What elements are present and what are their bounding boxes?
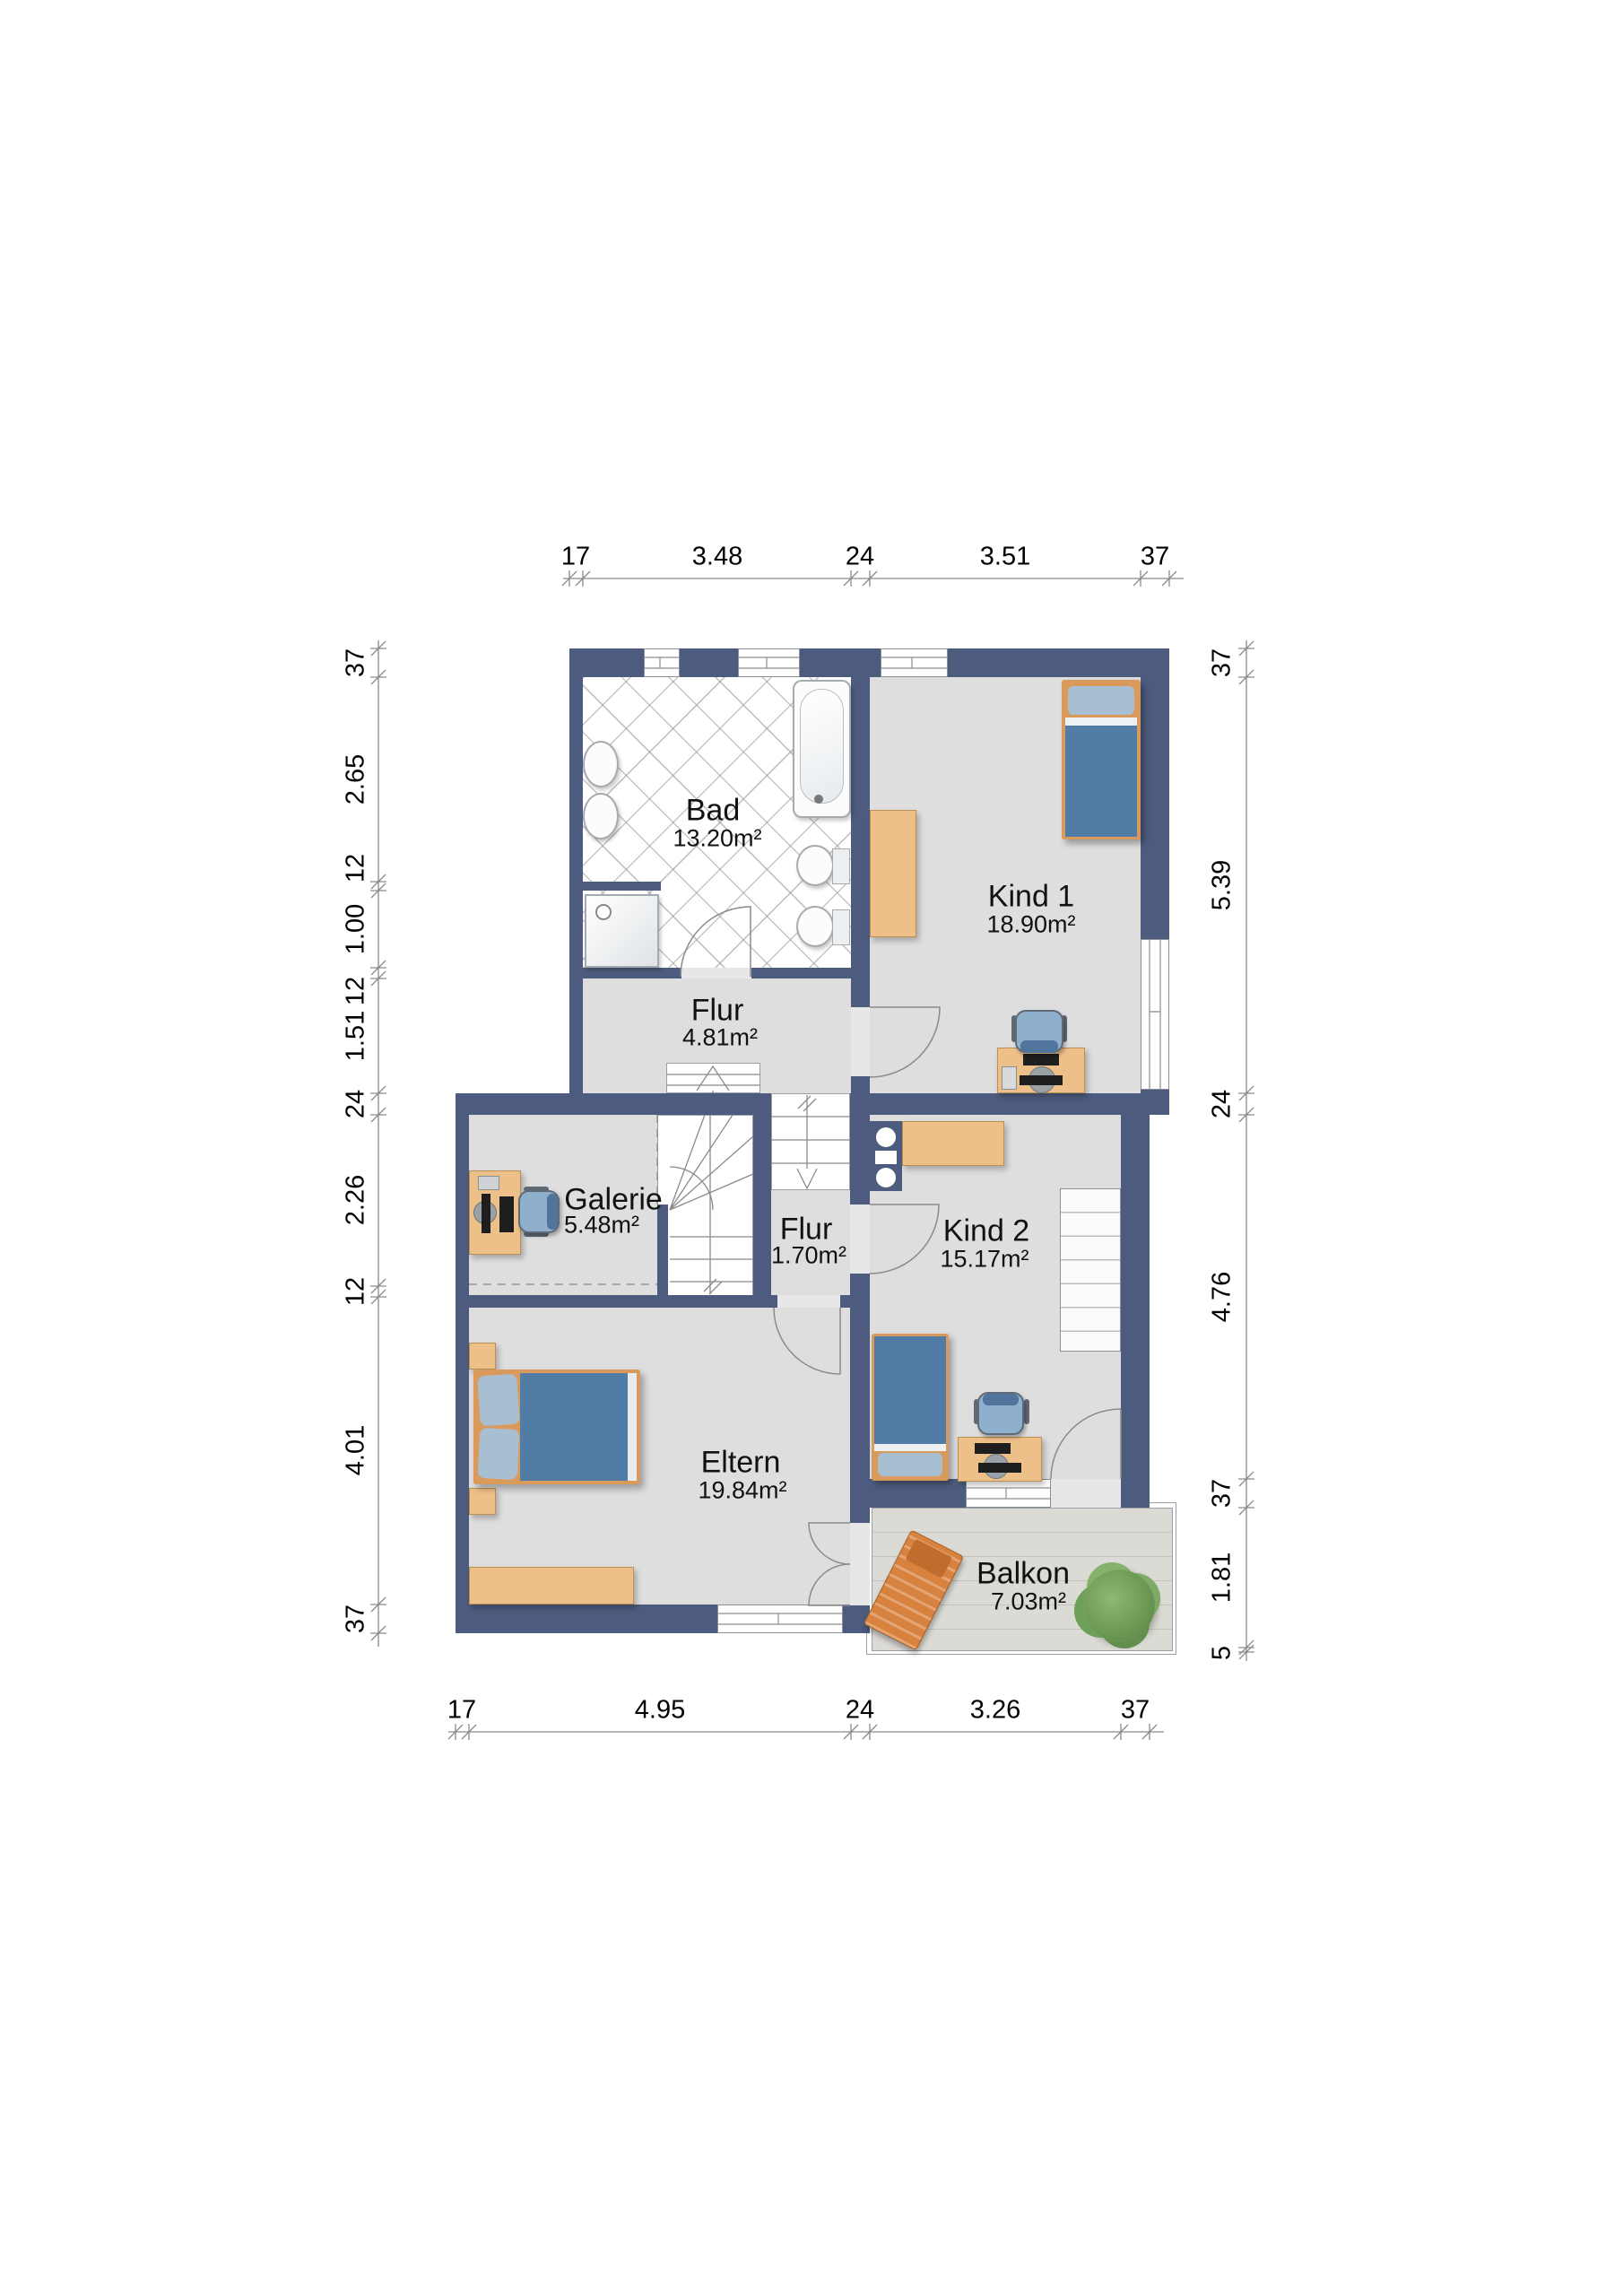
nightstand-2 [469, 1488, 496, 1515]
dresser-knob-2 [876, 1168, 896, 1187]
wall-flur2-a [850, 1093, 870, 1205]
desk-kind2 [958, 1437, 1042, 1482]
label-balkon-area: 7.03m² [991, 1588, 1066, 1616]
chair-kind1-back [1020, 1040, 1058, 1053]
wall-bad-kind1-b [851, 1076, 870, 1093]
shower-tray [585, 894, 659, 968]
sideboard-eltern [469, 1567, 634, 1605]
toilet-2-bowl [796, 906, 834, 947]
desk-galerie-tower [499, 1196, 514, 1232]
threshold-kind2-door [850, 1205, 870, 1274]
window-bad-small [644, 648, 680, 677]
dim-left-2: 12 [342, 854, 371, 883]
dim-line-top [562, 570, 1184, 587]
dim-right-1: 5.39 [1208, 860, 1237, 910]
desk-galerie-monitor [482, 1194, 490, 1233]
dim-top-4: 37 [1141, 543, 1169, 572]
chair-kind2-back [983, 1394, 1019, 1405]
wall-winder-stub [657, 1205, 668, 1303]
dim-bottom-3: 3.26 [970, 1696, 1020, 1726]
wall-galerie-band-l [456, 1295, 777, 1308]
chair-kind2-armrest-right [1024, 1399, 1029, 1424]
wall-left-upper [569, 677, 583, 1115]
sink-1 [583, 741, 619, 787]
wall-mid-left [456, 1093, 771, 1115]
bed-kind2-sheet [874, 1444, 946, 1451]
label-flur2-area: 1.70m² [771, 1242, 846, 1270]
label-flur-area: 4.81m² [682, 1024, 758, 1052]
dim-top-1: 3.48 [692, 543, 742, 572]
threshold-bad-door [681, 968, 751, 978]
dim-left-7: 2.26 [342, 1175, 371, 1225]
dim-bottom-0: 17 [447, 1696, 476, 1726]
window-kind1-right [1141, 939, 1169, 1090]
bed-eltern-blanket [520, 1373, 635, 1481]
wall-galerie-band-r [840, 1295, 870, 1308]
bathtub-drain [814, 795, 823, 804]
wall-left-lower [456, 1115, 469, 1633]
bed-kind2 [872, 1334, 949, 1481]
dim-left-9: 4.01 [342, 1425, 371, 1475]
dresser-kind2 [870, 1121, 902, 1191]
threshold-eltern-balcony [850, 1523, 870, 1605]
desk-kind2-monitor [978, 1463, 1021, 1473]
dim-right-5: 1.81 [1208, 1552, 1237, 1603]
bed-kind2-pillow [878, 1453, 942, 1476]
desk-kind1-monitor [1020, 1075, 1063, 1085]
toilet-1-bowl [796, 845, 834, 886]
threshold-kind1-door [851, 1007, 870, 1076]
label-bad-area: 13.20m² [673, 825, 761, 853]
threshold-eltern-door [777, 1295, 840, 1308]
dim-top-3: 3.51 [980, 543, 1030, 572]
dim-bottom-4: 37 [1121, 1696, 1150, 1726]
bathtub-basin [800, 689, 844, 804]
bed-eltern-pillow-2 [478, 1428, 520, 1480]
dim-left-1: 2.65 [342, 754, 371, 804]
dim-left-8: 12 [342, 1277, 371, 1306]
dresser-knob-1 [876, 1127, 896, 1147]
bed-eltern-pillow-1 [477, 1374, 520, 1427]
shelf-kind2 [902, 1121, 1004, 1166]
dim-top-0: 17 [561, 543, 590, 572]
bed-eltern [473, 1370, 640, 1484]
desk-kind1 [997, 1048, 1085, 1093]
label-balkon-name: Balkon [976, 1557, 1070, 1592]
label-bad-name: Bad [686, 794, 741, 829]
bed-kind1-sheet [1065, 717, 1137, 726]
sink-2 [583, 793, 619, 839]
dim-top-2: 24 [846, 543, 874, 572]
wall-stair-cheek [753, 1115, 771, 1308]
dim-bottom-2: 24 [846, 1696, 874, 1726]
window-kind2 [966, 1479, 1051, 1508]
window-eltern [717, 1605, 843, 1633]
desk-galerie [469, 1170, 521, 1255]
bed-kind1 [1062, 680, 1141, 839]
wall-right-lower [1121, 1115, 1150, 1508]
dim-right-0: 37 [1208, 648, 1237, 677]
wall-shower-stub [583, 882, 661, 891]
wardrobe-kind2 [1060, 1188, 1121, 1352]
label-kind1-name: Kind 1 [988, 880, 1074, 915]
nightstand-1 [469, 1343, 496, 1370]
desk-kind2-keyboard [975, 1443, 1011, 1454]
label-kind1-area: 18.90m² [986, 911, 1075, 939]
wall-bad-bottom-l [583, 968, 681, 978]
dim-right-4: 37 [1208, 1479, 1237, 1508]
toilet-2-tank [832, 909, 850, 945]
stair-lower-flight [771, 1093, 850, 1190]
threshold-kind2-balcony [1051, 1479, 1121, 1508]
dim-left-4: 12 [342, 977, 371, 1005]
stair-upper-flight [666, 1063, 760, 1093]
dim-left-3: 1.00 [342, 904, 371, 954]
chair-galerie-back [547, 1194, 558, 1230]
dim-left-5: 1.51 [342, 1011, 371, 1061]
bathtub [793, 680, 851, 818]
label-eltern-name: Eltern [701, 1446, 781, 1481]
plant [1083, 1570, 1155, 1641]
label-kind2-area: 15.17m² [940, 1246, 1028, 1274]
window-bad-large [738, 648, 800, 677]
desk-kind1-phone [1002, 1066, 1017, 1090]
wall-bad-kind1-a [851, 677, 870, 1007]
dim-line-bottom [448, 1724, 1164, 1740]
dim-left-0: 37 [342, 648, 371, 677]
wardrobe-kind1 [870, 810, 916, 937]
desk-kind1-keyboard [1023, 1054, 1059, 1065]
wall-bad-bottom-r [751, 968, 851, 978]
label-eltern-area: 19.84m² [698, 1477, 786, 1505]
stair-winder [657, 1115, 753, 1303]
floorplan-canvas: Bad 13.20m² Kind 1 18.90m² Flur 4.81m² G… [0, 0, 1623, 2296]
dim-bottom-1: 4.95 [635, 1696, 685, 1726]
dim-right-2: 24 [1208, 1090, 1237, 1118]
bed-kind1-blanket [1065, 726, 1137, 837]
dim-line-left [370, 640, 386, 1647]
label-kind2-name: Kind 2 [943, 1214, 1029, 1249]
dresser-drawer [875, 1151, 897, 1164]
wall-mid-right [870, 1093, 1150, 1115]
label-galerie-area: 5.48m² [564, 1212, 639, 1239]
bed-kind2-blanket [874, 1336, 946, 1444]
toilet-1-tank [832, 848, 850, 884]
dim-left-10: 37 [342, 1605, 371, 1633]
bed-kind1-pillow [1068, 686, 1134, 715]
bed-eltern-sheet [628, 1373, 637, 1481]
shower-drain [595, 904, 612, 920]
dim-right-6: 5 [1208, 1646, 1237, 1660]
dim-line-right [1238, 640, 1254, 1661]
window-kind1-top [881, 648, 948, 677]
dim-right-3: 4.76 [1208, 1272, 1237, 1322]
dim-left-6: 24 [342, 1090, 371, 1118]
desk-galerie-gadget [478, 1176, 499, 1190]
